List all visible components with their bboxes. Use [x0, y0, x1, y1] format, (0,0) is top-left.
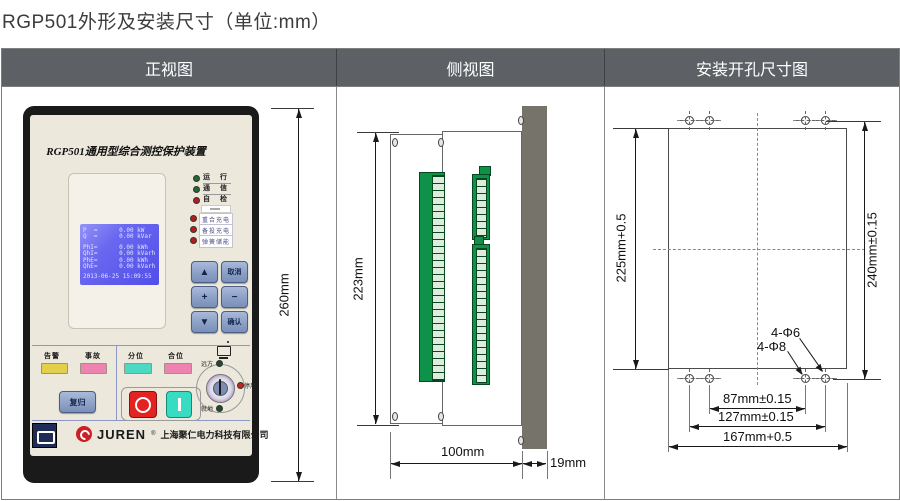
dimension-line-225	[635, 129, 636, 369]
brand-company: 上海聚仁电力科技有限公司	[161, 428, 269, 441]
lcd-timestamp: 2013-06-25 15:09:55	[83, 274, 157, 280]
recluse-charge-led-icon	[190, 215, 197, 222]
alarm-label: 告警	[44, 351, 60, 361]
dimension-line-223	[375, 133, 376, 424]
dimension-label-100: 100mm	[441, 444, 484, 459]
terminal-teeth	[476, 178, 487, 238]
cancel-button: 取消	[221, 261, 248, 283]
spring-energy-label: 弹簧储能	[199, 235, 233, 248]
brand-reg-mark: ®	[151, 431, 155, 437]
extension-line	[390, 432, 391, 479]
extension-line	[805, 385, 806, 414]
ring-icon	[135, 397, 151, 413]
dimension-tick	[613, 369, 669, 370]
mounting-hole	[685, 116, 694, 125]
local-label: 就地	[201, 404, 213, 413]
device-faceplate: RGP501通用型综合测控保护装置 P = 0.00 kW Q = 0.00 k…	[30, 115, 252, 456]
side-view-panel: 223mm 100mm 19mm	[336, 87, 604, 499]
front-view-panel: RGP501通用型综合测控保护装置 P = 0.00 kW Q = 0.00 k…	[2, 87, 336, 499]
reset-button: 复归	[59, 391, 96, 413]
comm-port-icon	[32, 423, 57, 448]
alarm-indicator	[41, 363, 68, 374]
disabled-dot-icon	[237, 382, 244, 389]
header-front-view: 正视图	[2, 49, 336, 86]
dimension-table: 正视图 侧视图 安装开孔尺寸图 RGP501通用型综合测控保护装置 P = 0.…	[1, 48, 900, 500]
blank-dash	[210, 208, 220, 210]
close-pos-label: 合位	[168, 351, 184, 361]
mounting-hole	[821, 374, 830, 383]
bar-icon	[178, 398, 181, 411]
dimension-line-100	[391, 463, 522, 464]
install-view-panel: 225mm+0.5 240mm±0.15 4-Φ6 4-Φ8	[604, 87, 899, 499]
dimension-label-127: 127mm±0.15	[718, 409, 794, 424]
down-button: ▼	[191, 311, 218, 333]
extension-line	[668, 370, 669, 452]
hole-callout-phi6: 4-Φ6	[771, 325, 800, 340]
dimension-label-167: 167mm+0.5	[723, 429, 792, 444]
selfcheck-led-icon	[193, 197, 200, 204]
up-button: ▲	[191, 261, 218, 283]
open-pos-indicator	[124, 363, 152, 374]
table-body-row: RGP501通用型综合测控保护装置 P = 0.00 kW Q = 0.00 k…	[2, 87, 899, 499]
spec-sheet: RGP501外形及安装尺寸（单位:mm） 正视图 侧视图 安装开孔尺寸图 RGP…	[0, 0, 900, 501]
page-title: RGP501外形及安装尺寸（单位:mm）	[2, 7, 331, 34]
dimension-tick	[271, 481, 314, 482]
extension-line	[847, 383, 848, 452]
run-led-icon	[193, 175, 200, 182]
device-title: RGP501通用型综合测控保护装置	[30, 143, 222, 159]
fault-indicator	[80, 363, 107, 374]
fault-label: 事故	[85, 351, 101, 361]
close-pos-indicator	[164, 363, 192, 374]
mounting-hole	[705, 116, 714, 125]
front-bezel-profile	[522, 106, 547, 449]
extension-line	[547, 451, 548, 479]
plus-button: +	[191, 286, 218, 308]
blank-label-window	[201, 205, 231, 213]
dimension-line-260	[298, 109, 299, 481]
remote-dot-icon	[216, 360, 223, 367]
dimension-tick	[613, 128, 669, 129]
marker-dot	[227, 341, 229, 343]
screw-icon	[438, 412, 444, 421]
local-dot-icon	[216, 405, 223, 412]
header-install-view: 安装开孔尺寸图	[604, 49, 899, 86]
header-side-view: 侧视图	[336, 49, 604, 86]
mounting-hole	[685, 374, 694, 383]
screw-icon	[392, 412, 398, 421]
terminal-teeth	[476, 248, 487, 383]
screw-icon	[438, 138, 444, 147]
dimension-tick	[833, 379, 881, 380]
minus-button: −	[221, 286, 248, 308]
comm-led-icon	[193, 186, 200, 193]
mounting-hole	[705, 374, 714, 383]
lcd-screen: P = 0.00 kW Q = 0.00 kVar PhI= 0.00 kWh …	[80, 224, 159, 285]
lcd-bezel: P = 0.00 kW Q = 0.00 kVar PhI= 0.00 kWh …	[68, 173, 166, 329]
computer-icon	[217, 346, 231, 356]
disabled-label: 停用	[244, 381, 256, 390]
close-button-I	[166, 391, 192, 418]
hole-callout-phi8: 4-Φ8	[757, 339, 786, 354]
dimension-line-127	[690, 426, 825, 427]
dimension-tick	[271, 108, 314, 109]
terminal-teeth	[432, 175, 445, 381]
dimension-tick	[826, 121, 881, 122]
brand-name: JUREN	[97, 427, 146, 442]
key-slot-icon	[219, 379, 221, 395]
juren-logo-icon	[76, 426, 92, 442]
mounting-hole	[801, 116, 810, 125]
device-front-illustration: RGP501通用型综合测控保护装置 P = 0.00 kW Q = 0.00 k…	[23, 106, 259, 483]
dimension-line-167	[669, 446, 847, 447]
lcd-line: Q = 0.00 kVar	[83, 234, 157, 240]
spring-energy-led-icon	[190, 237, 197, 244]
open-pos-label: 分位	[128, 351, 144, 361]
dimension-label-19: 19mm	[550, 455, 586, 470]
brand-row: JUREN ® 上海聚仁电力科技有限公司	[76, 426, 269, 442]
remote-label: 远方	[201, 359, 213, 368]
screw-icon	[392, 138, 398, 147]
port-glyph	[37, 431, 55, 444]
dimension-line-19	[523, 463, 546, 464]
trip-close-button-group	[121, 387, 201, 421]
dimension-label-87: 87mm±0.15	[723, 391, 792, 406]
backup-charge-led-icon	[190, 226, 197, 233]
centerline-horizontal	[653, 249, 865, 250]
extension-line	[825, 385, 826, 432]
table-header-row: 正视图 侧视图 安装开孔尺寸图	[2, 49, 899, 87]
lcd-line: QhE= 0.00 kVarh	[83, 264, 157, 270]
mounting-hole	[801, 374, 810, 383]
divider-line	[116, 345, 117, 420]
dimension-tick	[357, 425, 399, 426]
trip-button-O	[129, 391, 157, 418]
computer-icon-base	[219, 357, 228, 359]
screw-icon	[518, 116, 524, 125]
confirm-button: 确认	[221, 311, 248, 333]
screw-icon	[518, 436, 524, 445]
